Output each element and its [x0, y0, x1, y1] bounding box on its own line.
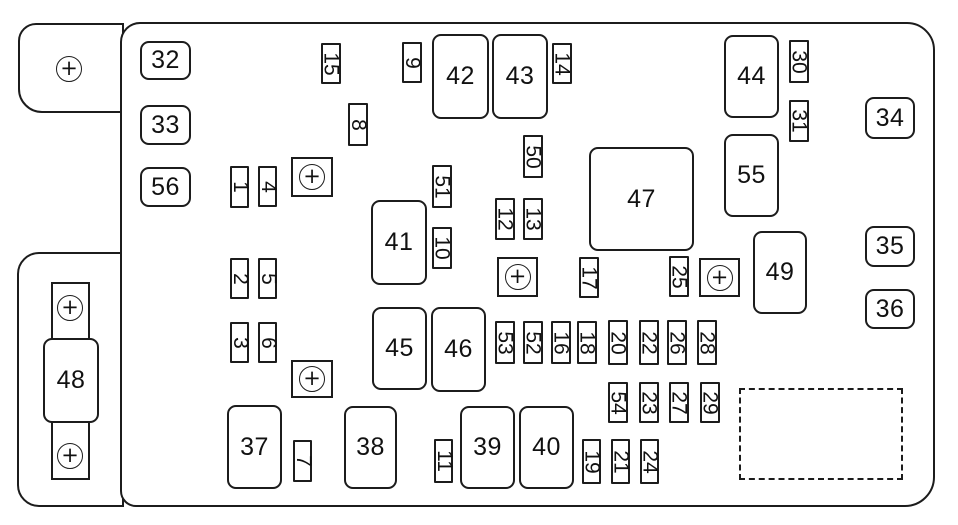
relay-label: 37	[240, 433, 269, 462]
fuse-label: 25	[667, 265, 691, 288]
relay-box-56: 56	[140, 167, 191, 207]
relay-label: 44	[737, 62, 766, 91]
fuse-label: 2	[228, 273, 252, 285]
fuse-label: 18	[575, 331, 599, 354]
relay-box-36: 36	[865, 289, 915, 329]
fuse-11: 11	[434, 439, 453, 483]
relay-box-46: 46	[431, 307, 486, 392]
relay-label: 38	[356, 433, 385, 462]
relay-box-37: 37	[227, 405, 282, 489]
fuse-label: 28	[695, 331, 719, 354]
relay-box-35: 35	[865, 226, 915, 267]
relay-label: 47	[627, 185, 656, 214]
relay-box-32: 32	[140, 41, 191, 80]
fuse-54: 54	[608, 382, 628, 423]
bolt-mount: +	[56, 56, 82, 82]
fuse-label: 14	[550, 52, 574, 75]
fuse-label: 9	[400, 57, 424, 69]
relay-box-47: 47	[589, 147, 694, 251]
relay-label: 55	[737, 161, 766, 190]
fuse-label: 17	[577, 266, 601, 289]
fuse-24: 24	[640, 439, 659, 484]
fuse-23: 23	[639, 382, 659, 423]
relay-box-55: 55	[724, 134, 779, 217]
fuse-51: 51	[432, 165, 452, 208]
relay-box-39: 39	[460, 406, 515, 489]
fuse-18: 18	[577, 321, 597, 364]
fuse-5: 5	[258, 258, 277, 299]
fuse-label: 20	[606, 331, 630, 354]
bolt-terminal: +	[699, 258, 740, 297]
relay-box-48: 48	[43, 338, 99, 423]
fuse-27: 27	[669, 382, 689, 423]
fuse-label: 54	[606, 391, 630, 414]
fuse-19: 19	[582, 439, 601, 484]
fuse-26: 26	[667, 320, 687, 365]
fuse-label: 52	[521, 331, 545, 354]
relay-label: 46	[444, 335, 473, 364]
bolt-icon: +	[57, 443, 83, 469]
dashed-empty-slot	[739, 388, 903, 480]
fuse-15: 15	[321, 43, 341, 84]
fuse-6: 6	[258, 322, 277, 363]
relay-label: 48	[57, 366, 86, 395]
fuse-53: 53	[495, 321, 515, 364]
fuse-25: 25	[669, 256, 689, 297]
fuse-29: 29	[700, 382, 720, 423]
relay-label: 45	[385, 334, 414, 363]
relay-label: 41	[385, 228, 414, 257]
relay-label: 35	[876, 232, 905, 261]
fuse-30: 30	[789, 40, 809, 83]
relay-box-38: 38	[344, 406, 397, 489]
fuse-17: 17	[579, 257, 599, 298]
fuse-label: 22	[637, 331, 661, 354]
fuse-label: 53	[493, 331, 517, 354]
relay-label: 43	[506, 62, 535, 91]
bolt-icon: +	[57, 295, 83, 321]
relay-label: 49	[766, 258, 795, 287]
fuse-label: 23	[637, 391, 661, 414]
relay-label: 36	[876, 295, 905, 324]
relay-label: 40	[532, 433, 561, 462]
fuse-20: 20	[608, 320, 628, 365]
fuse-4: 4	[258, 166, 277, 207]
bolt-terminal: +	[291, 360, 333, 398]
fuse-10: 10	[432, 227, 452, 269]
fuse-label: 24	[638, 450, 662, 473]
relay-label: 42	[446, 62, 475, 91]
fuse-50: 50	[523, 135, 543, 178]
relay-label: 33	[151, 111, 180, 140]
fuse-label: 26	[665, 331, 689, 354]
fuse-label: 27	[667, 391, 691, 414]
fuse-31: 31	[789, 100, 809, 142]
bolt-mount: +	[57, 443, 83, 469]
fuse-8: 8	[348, 103, 368, 146]
fuse-22: 22	[639, 320, 659, 365]
fuse-12: 12	[495, 198, 515, 240]
relay-label: 56	[151, 173, 180, 202]
bolt-terminal: +	[497, 257, 538, 297]
relay-label: 39	[473, 433, 502, 462]
fuse-label: 31	[787, 109, 811, 132]
fuse-label: 6	[256, 337, 280, 349]
fuse-label: 7	[291, 455, 315, 467]
fuse-label: 30	[787, 50, 811, 73]
bolt-icon: +	[299, 164, 325, 190]
relay-box-45: 45	[372, 307, 427, 390]
fuse-28: 28	[697, 320, 717, 365]
relay-label: 34	[876, 104, 905, 133]
fuse-1: 1	[230, 166, 249, 208]
relay-box-44: 44	[724, 35, 779, 118]
relay-label: 32	[151, 46, 180, 75]
relay-box-40: 40	[519, 406, 574, 489]
fuse-label: 12	[493, 207, 517, 230]
fuse-label: 3	[228, 337, 252, 349]
fuse-label: 10	[430, 236, 454, 259]
bolt-icon: +	[56, 56, 82, 82]
bolt-icon: +	[299, 366, 325, 392]
fuse-14: 14	[552, 43, 572, 84]
bolt-mount: +	[57, 295, 83, 321]
fuse-13: 13	[523, 198, 543, 240]
fuse-21: 21	[611, 439, 630, 484]
fuse-label: 51	[430, 175, 454, 198]
fuse-label: 16	[549, 331, 573, 354]
bolt-icon: +	[707, 265, 733, 291]
fuse-label: 50	[521, 145, 545, 168]
relay-box-41: 41	[371, 200, 427, 285]
relay-box-42: 42	[432, 34, 489, 119]
fuse-label: 21	[609, 450, 633, 473]
fuse-52: 52	[523, 321, 543, 364]
fuse-box-diagram: 3233563435364243445547414945463738394048…	[0, 0, 958, 525]
fuse-label: 8	[346, 119, 370, 131]
bolt-icon: +	[505, 264, 531, 290]
bolt-terminal: +	[291, 157, 333, 197]
relay-box-33: 33	[140, 105, 191, 145]
fuse-label: 13	[521, 207, 545, 230]
fuse-7: 7	[293, 440, 312, 482]
fuse-label: 29	[698, 391, 722, 414]
relay-box-43: 43	[492, 34, 548, 119]
relay-box-34: 34	[865, 97, 915, 139]
fuse-label: 15	[319, 52, 343, 75]
fuse-16: 16	[551, 321, 571, 364]
fuse-label: 19	[580, 450, 604, 473]
fuse-label: 4	[256, 181, 280, 193]
fuse-2: 2	[230, 258, 249, 299]
fuse-3: 3	[230, 322, 249, 363]
fuse-label: 5	[256, 273, 280, 285]
fuse-label: 11	[432, 450, 456, 472]
fuse-label: 1	[228, 181, 252, 193]
fuse-9: 9	[402, 42, 422, 83]
relay-box-49: 49	[753, 231, 807, 314]
